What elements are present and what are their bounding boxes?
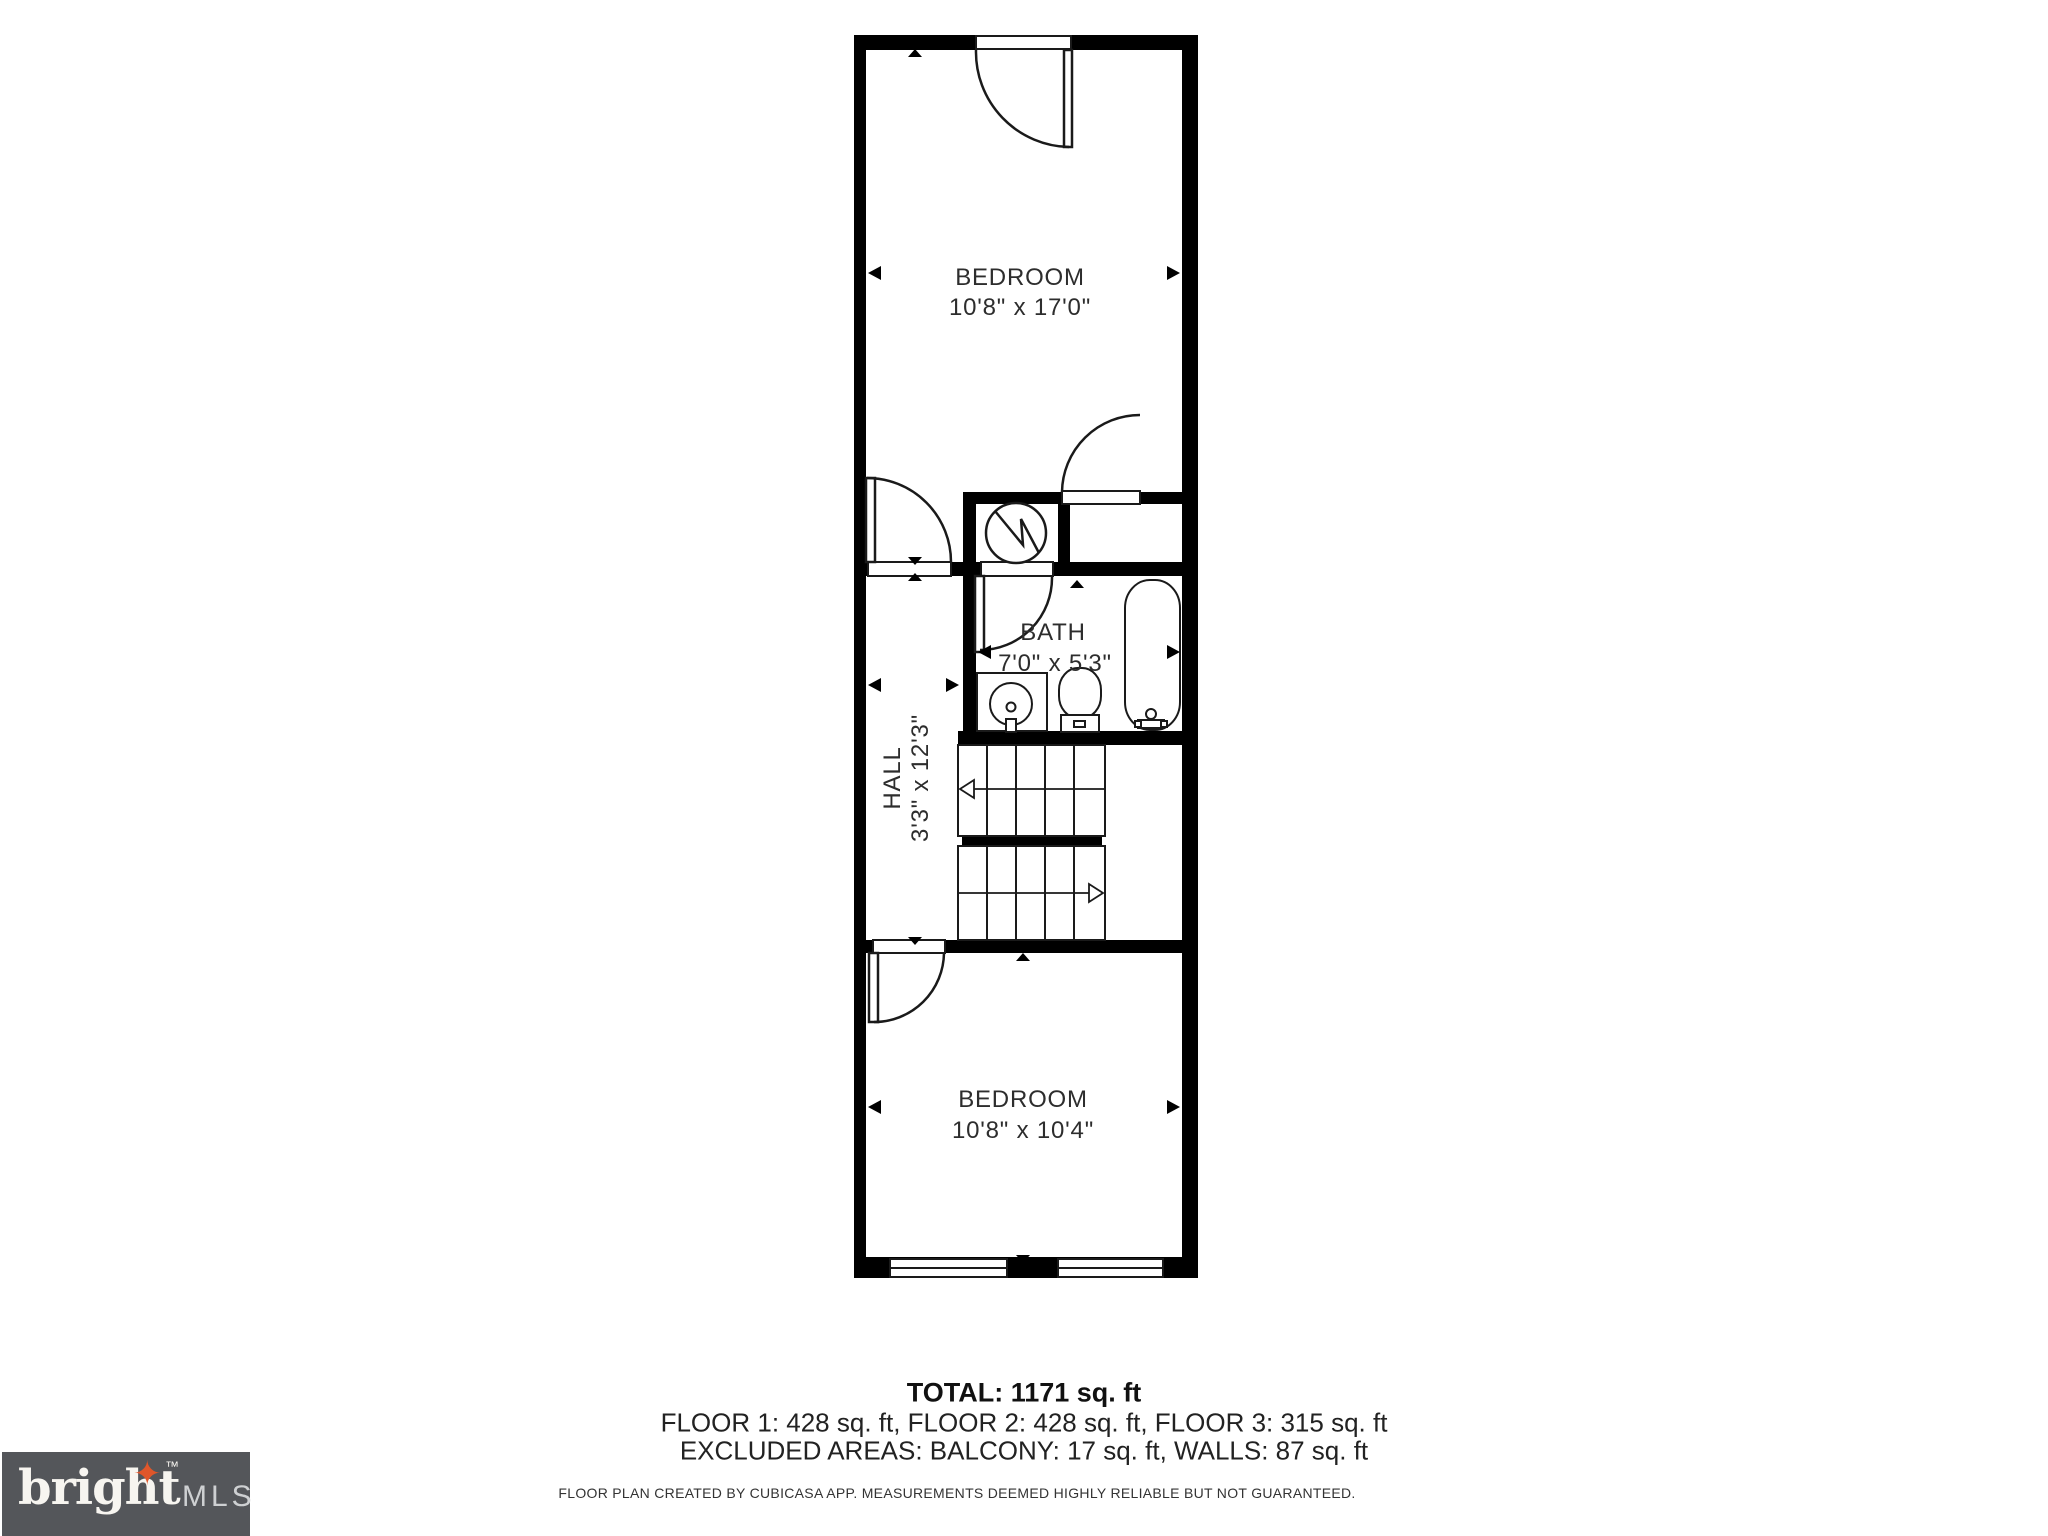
bath-bottom-wall (958, 731, 1183, 745)
room-label-hall: HALL (879, 746, 907, 809)
window-right (1058, 1259, 1163, 1277)
hall-bath-wall-seg1 (854, 562, 868, 576)
logo-trademark: ™ (165, 1458, 179, 1474)
bright-mls-logo: bright ✦ ™ MLS (2, 1452, 250, 1536)
closet-door (1062, 415, 1140, 492)
marker-bath-top (1070, 580, 1084, 588)
marker-hall-left (868, 678, 881, 692)
marker-bed2-left (868, 1100, 881, 1114)
room-dims-bedroom-1: 10'8" x 17'0" (949, 294, 1091, 322)
marker-top (908, 49, 922, 57)
hall-door (866, 478, 951, 562)
fixtures (977, 503, 1180, 732)
top-wall-left (854, 35, 976, 50)
room-label-bath: BATH (1020, 619, 1085, 647)
stair-divider-wall (962, 836, 1102, 846)
window-left (890, 1259, 1007, 1277)
disclaimer-text: FLOOR PLAN CREATED BY CUBICASA APP. MEAS… (558, 1485, 1355, 1501)
floor-plan-drawing (0, 0, 2048, 1536)
left-wall (854, 35, 866, 1278)
marker-bed2-right (1167, 1100, 1180, 1114)
floor-areas-text: FLOOR 1: 428 sq. ft, FLOOR 2: 428 sq. ft… (661, 1408, 1388, 1439)
excluded-areas-text: EXCLUDED AREAS: BALCONY: 17 sq. ft, WALL… (680, 1436, 1368, 1467)
bedroom2-door-opening (873, 940, 945, 953)
marker-bed1-left (868, 266, 881, 280)
top-door-opening (976, 36, 1071, 49)
hall-bath-wall-seg3 (1053, 562, 1183, 576)
top-wall-right (1071, 35, 1198, 50)
logo-mls-text: MLS (182, 1480, 256, 1514)
room-dims-bedroom-2: 10'8" x 10'4" (952, 1117, 1094, 1145)
marker-bed2wall-below (1016, 953, 1030, 961)
hall-bedroom-wall-seg1 (854, 940, 873, 953)
hall-bedroom-wall-seg2 (945, 940, 1198, 953)
right-wall (1182, 35, 1198, 1278)
closet-door-opening (1062, 491, 1140, 504)
top-bedroom-door (976, 50, 1072, 147)
hall-door-opening (868, 562, 951, 576)
floor-plan-page: BEDROOM 10'8" x 17'0" BATH 7'0" x 5'3" H… (0, 0, 2048, 1536)
stairs-upper-flight (958, 745, 1105, 836)
room-label-bedroom-2: BEDROOM (958, 1086, 1088, 1114)
sink-icon (977, 673, 1047, 732)
water-heater-icon (986, 503, 1046, 563)
logo-star-icon: ✦ (133, 1454, 162, 1494)
room-dims-hall: 3'3" x 12'3" (907, 714, 935, 842)
marker-bed1-right (1167, 266, 1180, 280)
marker-hall-right (946, 678, 959, 692)
total-area-text: TOTAL: 1171 sq. ft (907, 1378, 1142, 1409)
room-label-bedroom-1: BEDROOM (955, 264, 1085, 292)
bedroom2-door (869, 953, 944, 1022)
room-dims-bath: 7'0" x 5'3" (998, 650, 1112, 678)
bedroom-closet-wall-right (1140, 492, 1183, 504)
closet-divider-wall (1058, 504, 1070, 576)
